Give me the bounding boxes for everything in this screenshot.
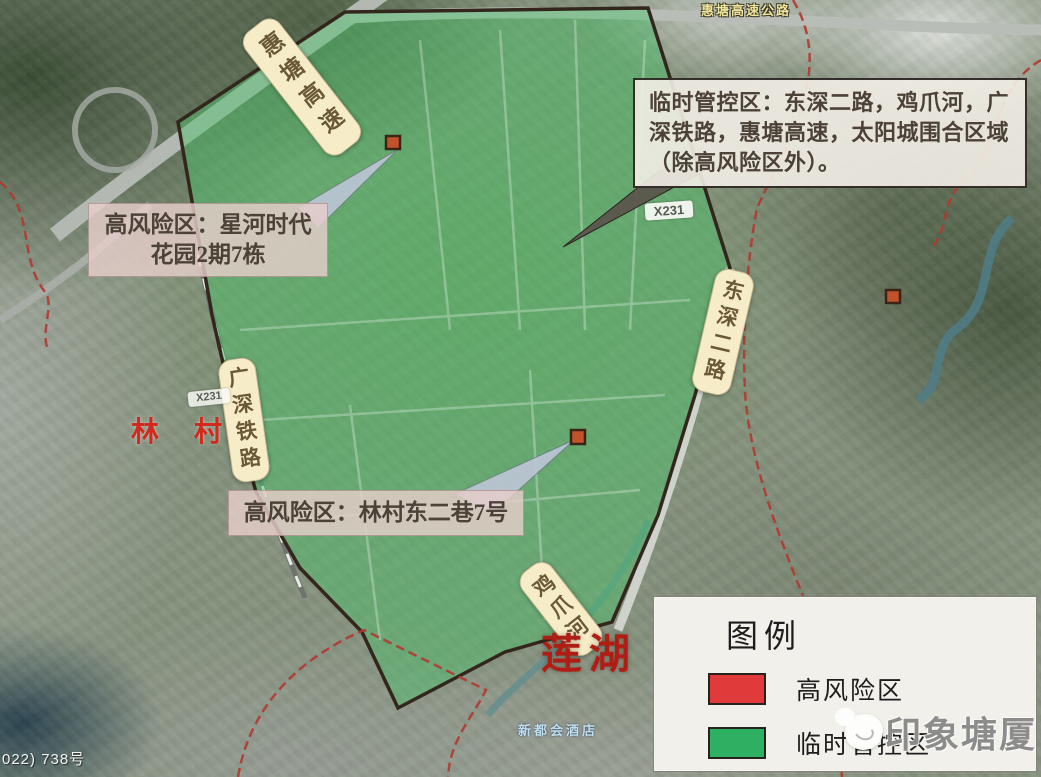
high-risk-marker-star	[386, 136, 400, 149]
place-label-lincun: 林 村	[131, 410, 236, 450]
legend-swatch-high-risk	[708, 673, 766, 705]
place-label-lianhu: 莲湖	[541, 620, 637, 680]
high-risk-callout-star-line2: 花园2期7栋	[91, 240, 325, 270]
high-risk-marker-lincun	[571, 430, 585, 444]
watermark: 印象塘厦	[845, 706, 1037, 758]
high-risk-callout-lincun-text: 高风险区：林村东二巷7号	[244, 500, 509, 525]
legend-swatch-control-zone	[708, 727, 766, 759]
interchange-loop	[75, 90, 155, 170]
control-zone-callout-text: 临时管控区：东深二路，鸡爪河，广深铁路，惠塘高速，太阳城围合区域（除高风险区外）…	[649, 90, 1009, 175]
east-river-line	[918, 218, 1012, 400]
top-road-label: 惠塘高速公路	[701, 0, 791, 19]
watermark-text: 印象塘厦	[885, 706, 1037, 758]
document-number-text: 022) 738号	[2, 748, 85, 769]
high-risk-callout-lincun: 高风险区：林村东二巷7号	[228, 490, 524, 536]
watermark-bird-logo-icon	[845, 714, 883, 750]
legend-title: 图例	[726, 611, 802, 657]
legend-label-high-risk: 高风险区	[796, 671, 904, 707]
high-risk-callout-star-line1: 高风险区：星河时代	[91, 210, 325, 240]
route-badge-x231: X231	[644, 200, 693, 220]
annotated-satellite-map: 惠塘高速 广深铁路 东深二路 鸡爪河 X231 X231 惠塘高速公路 林 村 …	[0, 0, 1041, 777]
legend-item-high-risk: 高风险区	[708, 671, 904, 707]
high-risk-marker-east	[886, 290, 900, 303]
high-risk-callout-star: 高风险区：星河时代 花园2期7栋	[88, 203, 328, 277]
control-zone-callout: 临时管控区：东深二路，鸡爪河，广深铁路，惠塘高速，太阳城围合区域（除高风险区外）…	[633, 78, 1027, 188]
place-label-hotel: 新都会酒店	[518, 720, 598, 739]
